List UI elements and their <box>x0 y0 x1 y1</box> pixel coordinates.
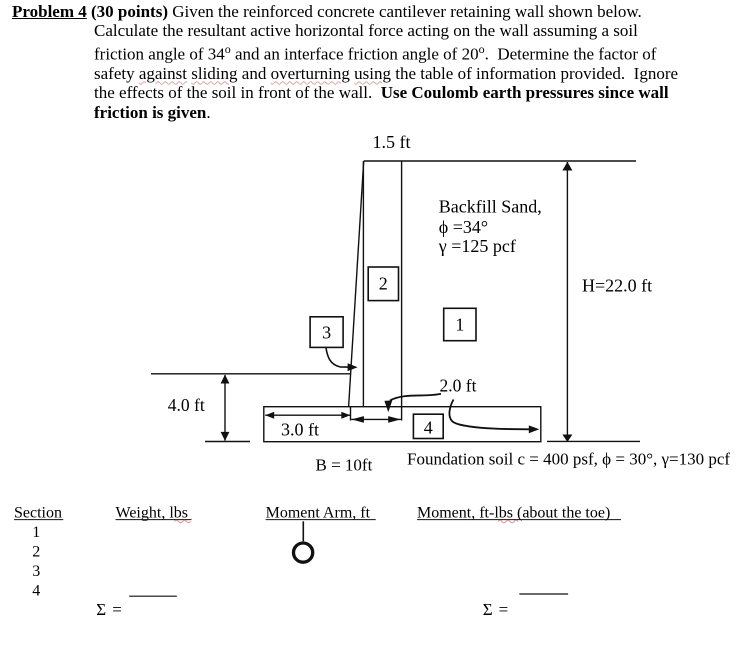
svg-text:1: 1 <box>455 314 464 334</box>
svg-text:1: 1 <box>32 524 40 541</box>
svg-text:Moment, ft-lbs (about the toe): Moment, ft-lbs (about the toe) <box>417 505 610 522</box>
svg-text:3: 3 <box>322 323 331 343</box>
svg-text:ϕ =34°: ϕ =34° <box>439 217 488 237</box>
svg-text:Backfill Sand,: Backfill Sand, <box>439 197 542 217</box>
svg-text:4.0 ft: 4.0 ft <box>168 395 205 415</box>
svg-text:Section: Section <box>14 505 62 522</box>
svg-text:B = 10ft: B = 10ft <box>316 455 373 474</box>
svg-text:4: 4 <box>32 582 40 599</box>
svg-text:Σ=: Σ= <box>96 600 121 619</box>
svg-text:3.0 ft: 3.0 ft <box>281 419 319 439</box>
svg-text:H=22.0 ft: H=22.0 ft <box>582 276 652 296</box>
svg-text:4: 4 <box>424 417 433 437</box>
svg-text:2: 2 <box>379 274 388 294</box>
svg-text:2.0 ft: 2.0 ft <box>440 376 477 396</box>
svg-text:2: 2 <box>32 544 40 561</box>
svg-text:Moment Arm, ft: Moment Arm, ft <box>266 505 371 522</box>
svg-text:3: 3 <box>32 563 40 580</box>
svg-text:1.5 ft: 1.5 ft <box>373 132 411 152</box>
svg-text:Σ=: Σ= <box>483 600 508 619</box>
svg-text:Weight, lbs: Weight, lbs <box>116 505 188 522</box>
svg-text:Foundation soil c = 400 psf, ϕ: Foundation soil c = 400 psf, ϕ = 30°, γ=… <box>407 450 730 469</box>
svg-text:γ =125 pcf: γ =125 pcf <box>438 236 516 256</box>
